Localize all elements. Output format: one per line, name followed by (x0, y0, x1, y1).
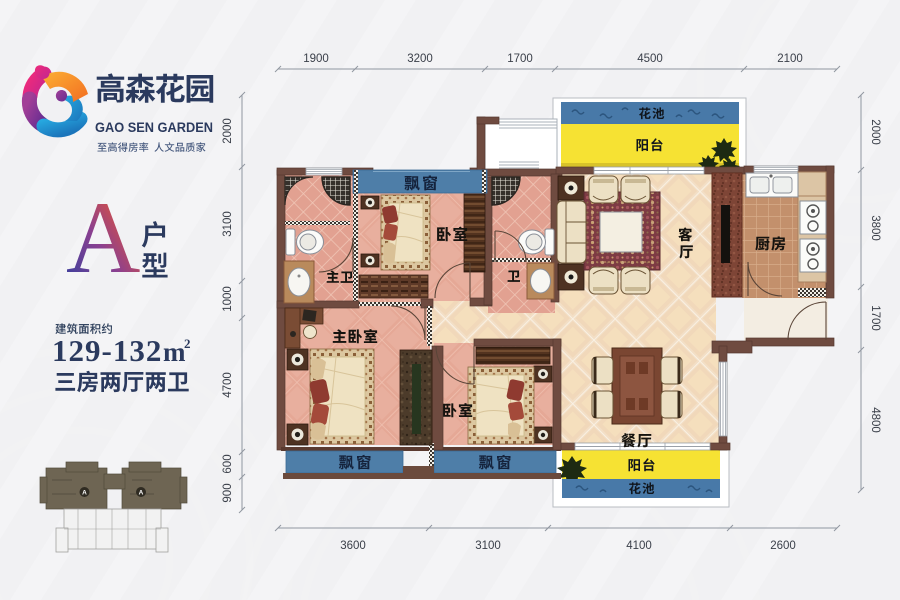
svg-text:129-132: 129-132 (52, 333, 162, 368)
svg-text:3800: 3800 (869, 215, 881, 241)
svg-text:600: 600 (222, 454, 234, 473)
svg-text:1000: 1000 (222, 286, 234, 312)
svg-text:1700: 1700 (507, 53, 533, 65)
svg-text:A: A (66, 181, 140, 295)
svg-text:2600: 2600 (770, 540, 796, 552)
svg-text:900: 900 (222, 483, 234, 502)
svg-text:3200: 3200 (407, 53, 433, 65)
svg-text:3600: 3600 (340, 540, 366, 552)
svg-text:4500: 4500 (637, 53, 663, 65)
svg-text:2: 2 (184, 336, 191, 351)
svg-text:4800: 4800 (869, 407, 881, 433)
svg-text:GAO SEN GARDEN: GAO SEN GARDEN (95, 120, 213, 135)
svg-text:m: m (163, 337, 186, 367)
svg-text:4700: 4700 (222, 372, 234, 398)
svg-text:2100: 2100 (777, 53, 803, 65)
svg-text:1900: 1900 (303, 53, 329, 65)
svg-text:3100: 3100 (222, 211, 234, 237)
svg-text:4100: 4100 (626, 540, 652, 552)
svg-text:2000: 2000 (869, 119, 881, 145)
svg-text:A: A (82, 490, 87, 497)
svg-text:2000: 2000 (222, 118, 234, 144)
svg-text:A: A (139, 490, 144, 497)
svg-text:1700: 1700 (869, 305, 881, 331)
svg-text:3100: 3100 (475, 540, 501, 552)
